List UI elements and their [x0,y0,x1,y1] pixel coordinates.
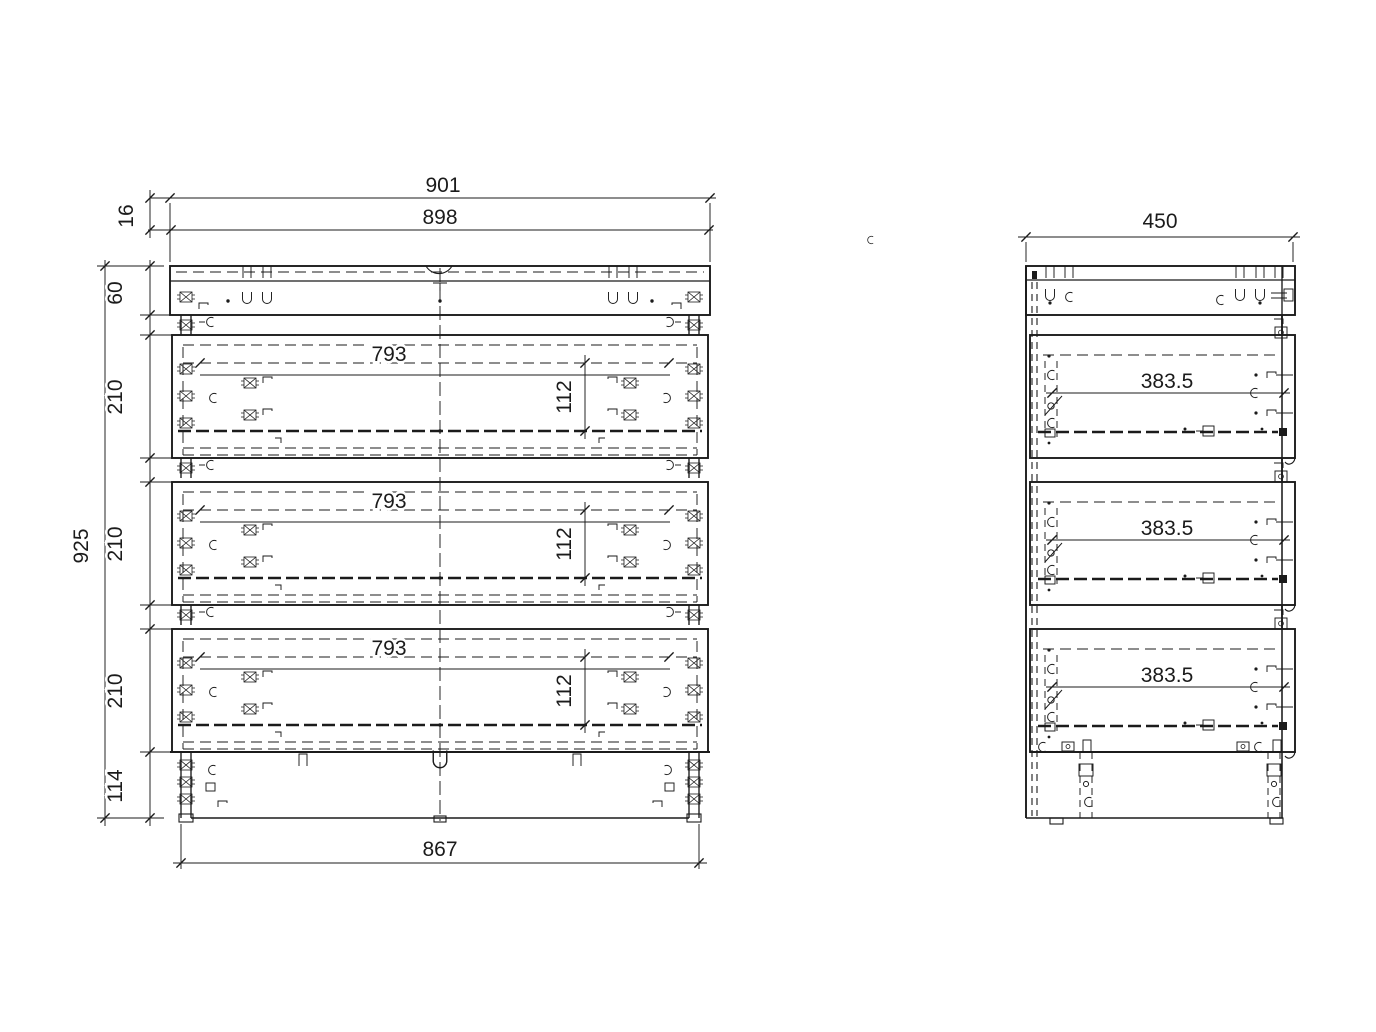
dim-drawer-width-3: 793 [371,637,406,660]
side-dimensions: 450 383.5 383.5 383.5 [1018,210,1300,687]
dim-drawer-width-1: 793 [371,343,406,366]
dim-drawer-inner-height-1: 112 [553,380,576,413]
dim-drawer-height-2: 210 [104,526,127,561]
front-view [170,266,710,822]
dim-plinth-height: 114 [104,769,127,803]
dim-drawer-width-2: 793 [371,490,406,513]
dim-drawer-depth-3: 383.5 [1141,664,1194,687]
dim-overall-height: 925 [70,528,93,563]
dim-top-thickness: 16 [115,204,138,227]
dim-drawer-inner-height-2: 112 [553,527,576,560]
side-plinth [1026,740,1283,824]
dim-drawer-depth-2: 383.5 [1141,517,1194,540]
side-top-rail [868,236,1295,315]
dim-base-width: 867 [422,838,457,861]
plinth-hardware-left [177,754,307,807]
side-carcass-edges [1026,266,1282,818]
dim-overall-width: 901 [425,174,460,197]
side-back-panel [1032,282,1037,816]
cad-drawing-canvas: 901 898 16 925 60 210 210 210 114 867 79… [0,0,1376,1032]
furniture-assembly-drawing: 901 898 16 925 60 210 210 210 114 867 79… [0,0,1376,1032]
dim-drawer-depth-1: 383.5 [1141,370,1194,393]
dim-carcass-width: 898 [422,206,457,229]
dim-drawer-inner-height-3: 112 [553,674,576,707]
dim-rail-height: 60 [104,281,127,304]
dim-drawer-height-3: 210 [104,673,127,708]
side-view [868,236,1295,824]
dim-drawer-height-1: 210 [104,379,127,414]
rail-hardware-left [177,266,272,309]
dim-overall-depth: 450 [1142,210,1177,233]
